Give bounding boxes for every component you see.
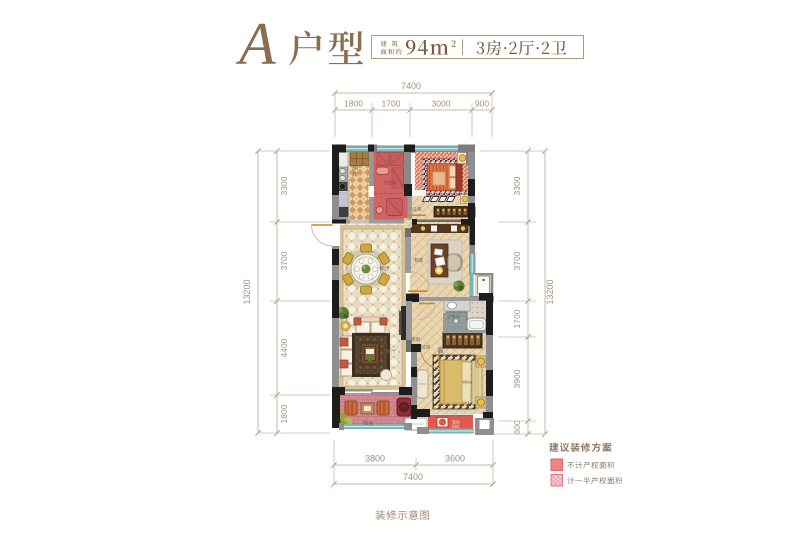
svg-text:3700: 3700 — [512, 251, 522, 270]
svg-text:3300: 3300 — [279, 176, 289, 195]
svg-text:7400: 7400 — [401, 81, 421, 91]
svg-text:3800: 3800 — [365, 454, 385, 464]
svg-text:600: 600 — [512, 420, 522, 434]
svg-text:900: 900 — [475, 99, 489, 109]
svg-text:A: A — [235, 11, 276, 77]
svg-text:1800: 1800 — [279, 404, 289, 423]
svg-text:1700: 1700 — [512, 309, 522, 328]
svg-text:1700: 1700 — [382, 99, 401, 109]
svg-text:13200: 13200 — [242, 279, 252, 304]
svg-text:3300: 3300 — [512, 176, 522, 195]
svg-text:3600: 3600 — [445, 454, 465, 464]
svg-text:13200: 13200 — [545, 279, 555, 304]
svg-text:4400: 4400 — [279, 338, 289, 357]
svg-text:3000: 3000 — [432, 99, 451, 109]
svg-text:1800: 1800 — [344, 99, 363, 109]
svg-text:3700: 3700 — [279, 251, 289, 270]
svg-text:7400: 7400 — [403, 472, 423, 482]
svg-text:3900: 3900 — [512, 369, 522, 388]
